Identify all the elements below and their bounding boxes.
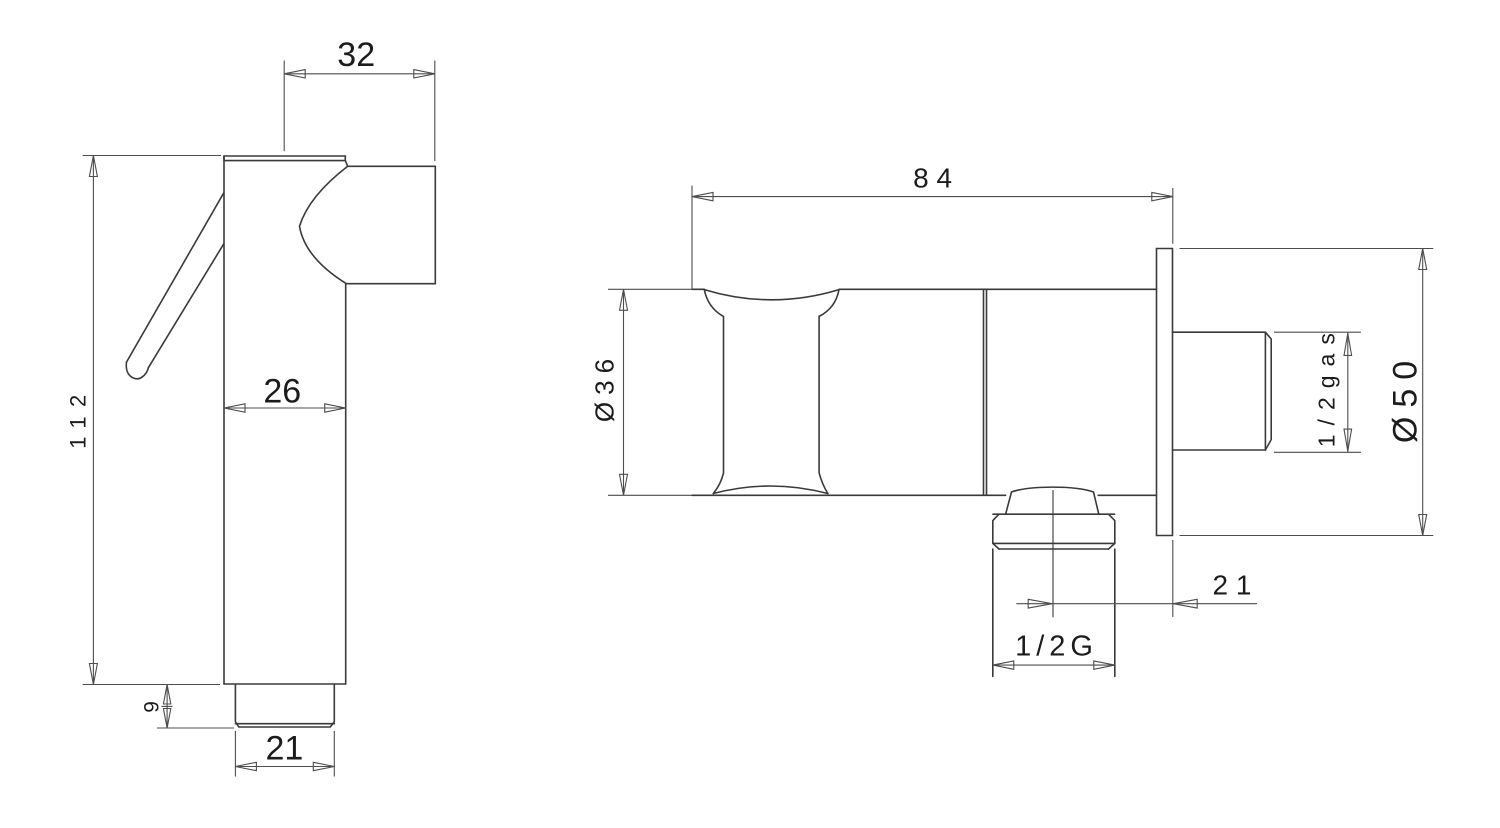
svg-text:Ø36: Ø36	[590, 352, 620, 422]
svg-text:Ø50: Ø50	[1387, 352, 1425, 443]
svg-text:26: 26	[263, 373, 301, 411]
svg-text:32: 32	[337, 36, 375, 74]
svg-text:9: 9	[140, 701, 163, 713]
svg-text:1/2G: 1/2G	[1015, 631, 1098, 663]
svg-text:1/2gas: 1/2gas	[1314, 324, 1340, 447]
svg-text:2 1: 2 1	[1213, 569, 1252, 600]
svg-text:112: 112	[66, 385, 91, 449]
svg-text:21: 21	[265, 730, 303, 768]
svg-text:8 4: 8 4	[913, 163, 952, 194]
